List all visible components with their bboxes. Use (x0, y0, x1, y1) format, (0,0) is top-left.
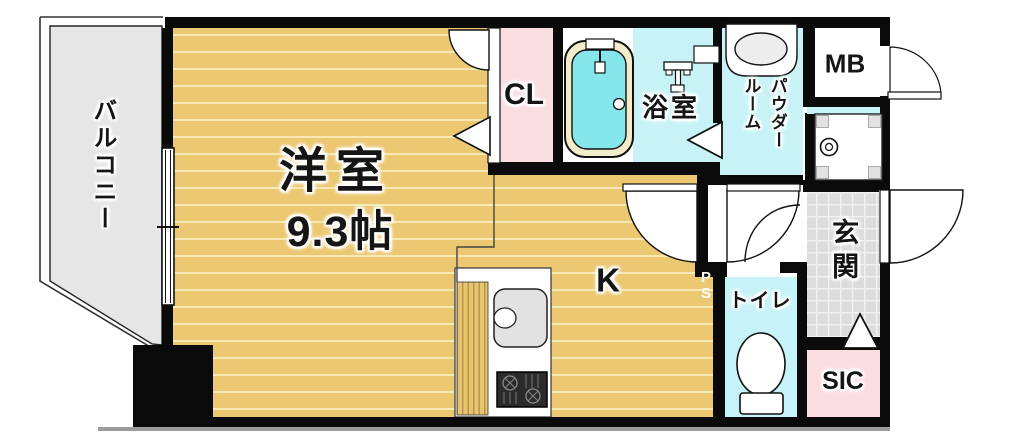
pipe-space-label: P S (694, 270, 718, 302)
washing-machine-pan (815, 114, 882, 180)
meter-box-label: MB (825, 49, 865, 78)
shoe-closet-label: SIC (822, 367, 864, 395)
living-room-label: 洋室 (279, 145, 393, 199)
hallway-door (727, 184, 800, 262)
powder-room-label: パウダー ルーム (737, 77, 790, 149)
kitchen-label: K (596, 263, 620, 300)
bath-shelf (694, 46, 719, 63)
meter-box-door (879, 46, 941, 99)
floorplan-canvas: バルコニー 洋室 9.3帖 CL 浴室 パウダー ルーム MB 玄関 トイレ S… (0, 0, 1009, 443)
front-door (879, 190, 963, 263)
bath-label: 浴室 (642, 93, 700, 122)
closet-label: CL (504, 78, 544, 112)
kitchen-sink (494, 289, 547, 347)
bathtub (565, 39, 633, 157)
toilet-fixture (737, 333, 785, 414)
powder-sink (726, 24, 797, 76)
bottom-wall-shadow (98, 427, 890, 431)
kitchen-stove (497, 372, 547, 407)
living-room-size: 9.3帖 (287, 208, 394, 256)
kitchen-step-strip (457, 282, 488, 415)
toilet-label: トイレ (729, 290, 792, 312)
balcony-label: バルコニー (88, 98, 115, 233)
entrance-label: 玄関 (828, 218, 858, 286)
powder-floor-sliver (807, 107, 880, 114)
